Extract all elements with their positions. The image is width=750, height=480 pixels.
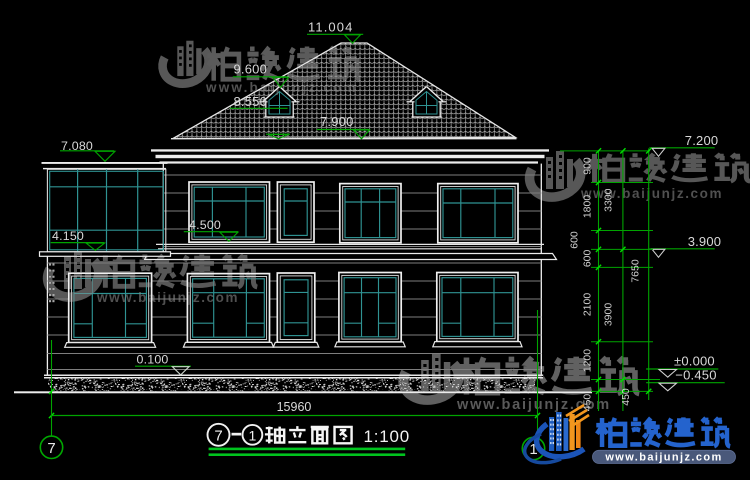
svg-text:3900: 3900 <box>603 303 615 327</box>
svg-text:450: 450 <box>620 388 632 406</box>
svg-text:9.600: 9.600 <box>234 62 268 77</box>
svg-text:4.150: 4.150 <box>52 229 84 243</box>
svg-text:1:100: 1:100 <box>364 427 411 446</box>
svg-text:7: 7 <box>214 428 222 445</box>
svg-text:2100: 2100 <box>582 293 594 317</box>
svg-text:7.900: 7.900 <box>320 114 354 129</box>
svg-text:7: 7 <box>47 440 55 457</box>
svg-text:3.900: 3.900 <box>688 234 722 249</box>
svg-text:15960: 15960 <box>277 400 312 414</box>
svg-text:4.500: 4.500 <box>189 218 221 232</box>
svg-text:www.baijunjz.com: www.baijunjz.com <box>604 452 722 464</box>
svg-text:www.baijunjz.com: www.baijunjz.com <box>96 290 239 305</box>
svg-text:1800: 1800 <box>582 195 594 219</box>
svg-text:1200: 1200 <box>582 349 594 373</box>
svg-text:www.baijunjz.com: www.baijunjz.com <box>205 80 358 95</box>
svg-text:900: 900 <box>582 157 594 175</box>
svg-text:11.004: 11.004 <box>308 20 353 35</box>
svg-text:0.100: 0.100 <box>137 353 169 367</box>
svg-text:450: 450 <box>582 394 594 412</box>
svg-text:−0.450: −0.450 <box>675 367 716 382</box>
svg-text:600: 600 <box>569 231 581 249</box>
svg-text:1: 1 <box>249 427 257 443</box>
svg-text:8.550: 8.550 <box>234 94 268 109</box>
svg-text:600: 600 <box>582 249 594 267</box>
svg-text:7650: 7650 <box>630 259 642 283</box>
svg-text:3300: 3300 <box>603 188 615 212</box>
svg-text:±0.000: ±0.000 <box>674 354 715 369</box>
svg-text:www.baijunjz.com: www.baijunjz.com <box>580 186 723 201</box>
svg-text:7.200: 7.200 <box>685 133 719 148</box>
